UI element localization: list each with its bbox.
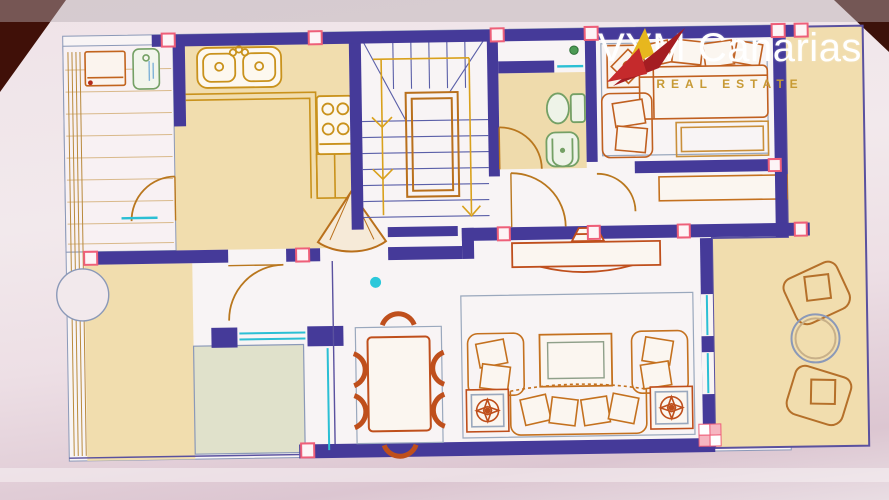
window-segment-teal (122, 218, 158, 219)
double-bed-with-pillows (639, 38, 768, 120)
paper-bottom-highlight (0, 468, 889, 482)
hallway-door-leaf (511, 173, 512, 227)
pink-corner-marker (769, 159, 781, 171)
plant-dot (570, 46, 579, 55)
stairs-right-wall (487, 31, 500, 176)
garden-patch-floor (194, 344, 306, 454)
wardrobe (659, 175, 787, 201)
kitchen-left-wall (173, 44, 186, 126)
pink-corner-marker (84, 252, 97, 265)
floor-plan-canvas (0, 0, 889, 500)
washing-machine (85, 51, 126, 86)
pink-corner-marker (491, 28, 504, 41)
garden-wall-stub-left (211, 328, 237, 348)
floor-plan-photo: VYM Canarias REAL ESTATE (0, 0, 889, 500)
tv-unit (539, 334, 612, 387)
garden-wall-stub-right (307, 326, 343, 347)
pink-corner-marker (585, 27, 598, 40)
bidet (546, 132, 579, 166)
pink-corner-marker (588, 226, 600, 239)
mid-wall-left-a (84, 250, 228, 265)
pink-corner-marker (296, 248, 309, 261)
floor-plan (53, 23, 870, 463)
bedroom-left-wall (585, 34, 598, 162)
terrace-door-leaf (228, 265, 283, 266)
pink-corner-marker (772, 24, 785, 37)
pink-corner-marker (678, 224, 690, 237)
checker-corner-marker (699, 424, 721, 446)
paper-top-edge (0, 0, 889, 22)
toilet (547, 93, 585, 124)
bathroom-top-wall (498, 60, 554, 73)
stairs-bottom-stub (388, 226, 458, 237)
utility-sink (133, 49, 160, 89)
pink-corner-marker (498, 227, 510, 240)
double-kitchen-sink (197, 46, 282, 89)
mid-wall-left-c (388, 246, 462, 260)
pink-corner-marker (301, 443, 314, 457)
terrace-notch (56, 269, 109, 322)
pink-corner-marker (309, 31, 322, 44)
cooktop (317, 96, 353, 155)
pink-corner-marker (162, 33, 175, 46)
dining-table (367, 336, 430, 431)
lamp-side-table-left (466, 389, 509, 432)
pink-corner-marker (795, 24, 808, 37)
pink-corner-marker (795, 223, 807, 236)
utility-door-leaf (175, 176, 176, 220)
bedroom-bottom-wall (635, 159, 775, 173)
bathroom-door-leaf (499, 127, 500, 169)
lamp-side-table-right (650, 386, 693, 429)
